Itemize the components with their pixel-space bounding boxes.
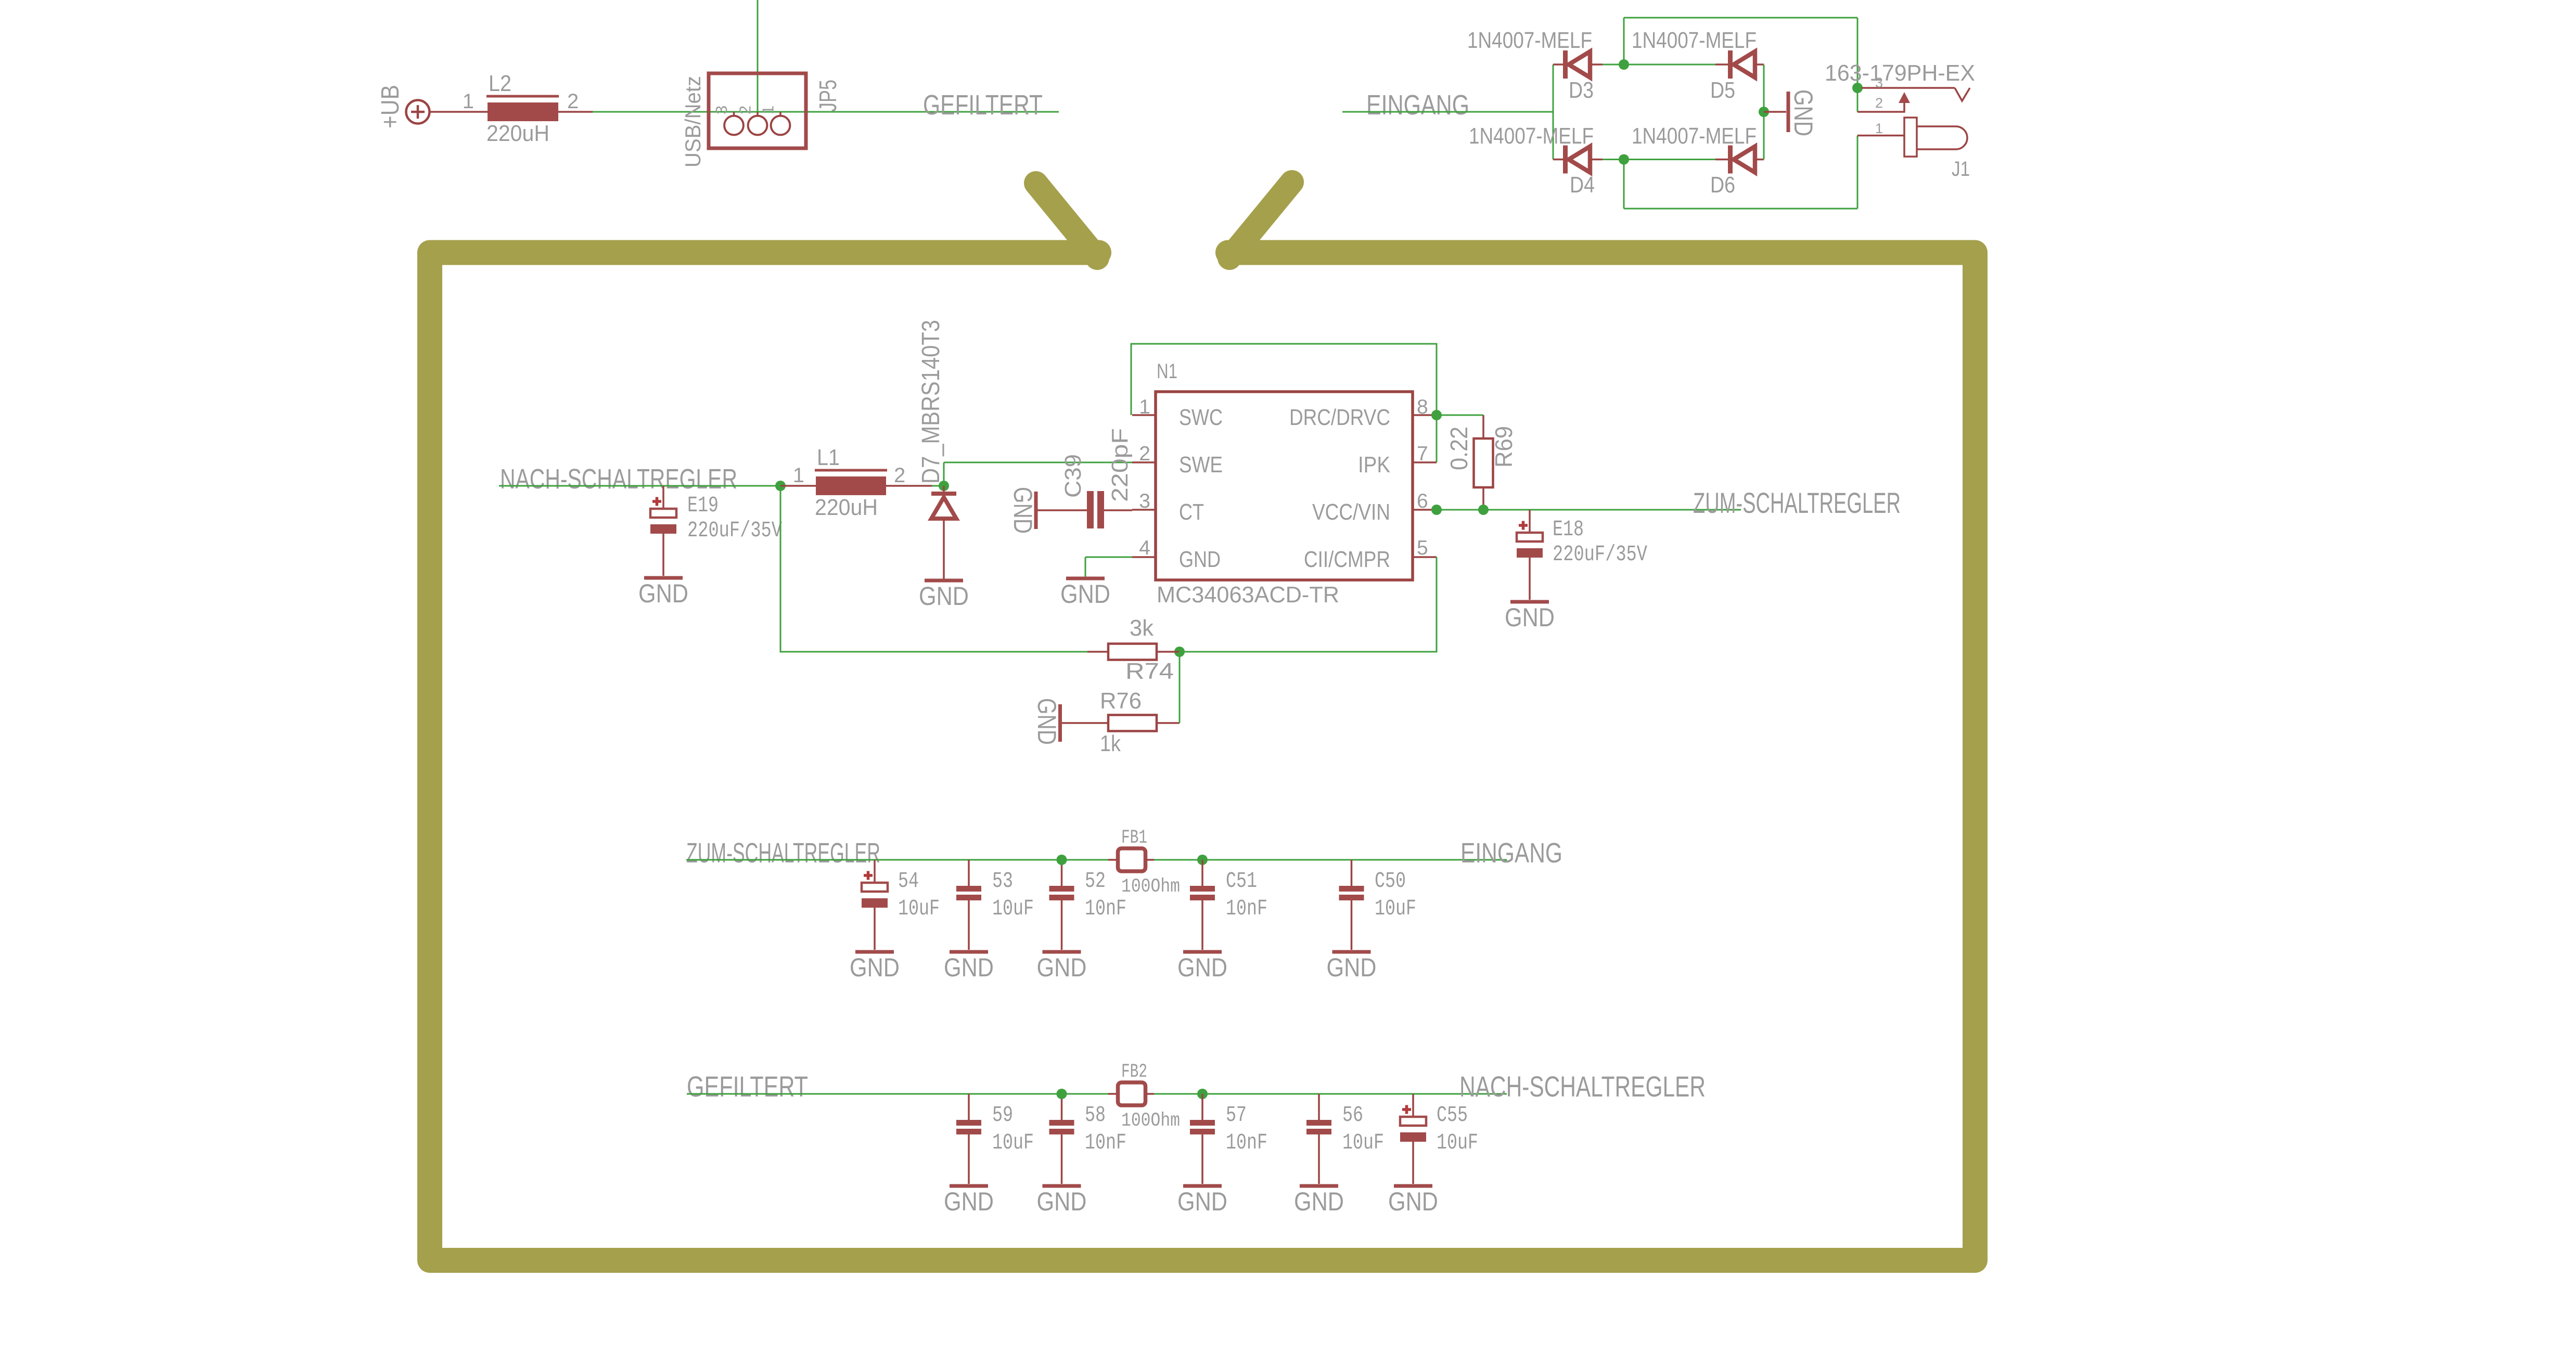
svg-text:1: 1 [1139,396,1150,418]
svg-text:1: 1 [463,90,474,113]
svg-text:L2: L2 [489,71,511,96]
svg-text:GND: GND [1388,1187,1438,1216]
svg-text:58: 58 [1085,1102,1106,1128]
svg-text:R74: R74 [1125,659,1174,684]
svg-text:GND: GND [944,1187,994,1216]
svg-text:220uF/35V: 220uF/35V [1553,541,1647,567]
svg-text:C51: C51 [1226,868,1257,894]
svg-text:R76: R76 [1100,688,1142,714]
svg-text:4: 4 [1139,537,1150,559]
svg-text:D3: D3 [1569,78,1594,103]
svg-text:220uF/35V: 220uF/35V [687,518,782,543]
svg-text:GND: GND [1037,953,1087,982]
svg-text:FB1: FB1 [1121,827,1147,849]
svg-text:59: 59 [992,1102,1013,1128]
svg-text:GND: GND [1789,89,1818,136]
svg-text:GND: GND [638,579,688,608]
svg-text:56: 56 [1342,1102,1363,1128]
svg-text:1N4007-MELF: 1N4007-MELF [1469,123,1594,149]
svg-text:8: 8 [1417,396,1428,418]
svg-text:2: 2 [567,90,579,113]
svg-text:1N4007-MELF: 1N4007-MELF [1632,28,1757,53]
svg-text:+UB: +UB [377,85,404,128]
svg-text:ZUM-SCHALTREGLER: ZUM-SCHALTREGLER [686,837,880,869]
svg-text:1: 1 [793,464,804,487]
svg-text:10uF: 10uF [992,1130,1034,1155]
svg-text:3: 3 [1139,490,1150,512]
svg-text:163-179PH-EX: 163-179PH-EX [1825,60,1975,86]
svg-text:C55: C55 [1437,1102,1468,1128]
svg-text:2: 2 [736,106,754,114]
svg-text:NACH-SCHALTREGLER: NACH-SCHALTREGLER [500,463,737,495]
svg-text:SWE: SWE [1179,452,1223,478]
svg-text:NACH-SCHALTREGLER: NACH-SCHALTREGLER [1459,1070,1706,1103]
svg-text:GND: GND [1177,1187,1227,1216]
svg-text:57: 57 [1226,1102,1247,1128]
svg-text:10uF: 10uF [1375,896,1416,921]
svg-text:52: 52 [1085,868,1106,894]
svg-text:0.22: 0.22 [1445,427,1472,470]
svg-text:D4: D4 [1570,172,1595,198]
svg-text:J1: J1 [1952,158,1970,180]
svg-text:54: 54 [898,868,919,894]
svg-text:CII/CMPR: CII/CMPR [1304,547,1390,572]
svg-text:L1: L1 [817,445,840,470]
svg-text:10nF: 10nF [1085,896,1126,921]
svg-text:FB2: FB2 [1121,1061,1147,1083]
svg-text:1N4007-MELF: 1N4007-MELF [1632,123,1757,149]
svg-text:2: 2 [894,464,905,487]
svg-text:GND: GND [850,953,900,982]
svg-text:USB/Netz: USB/Netz [681,76,705,167]
svg-text:10nF: 10nF [1085,1130,1126,1155]
svg-text:GND: GND [1060,579,1110,609]
svg-text:220uH: 220uH [815,495,878,520]
svg-text:GND: GND [1327,953,1377,982]
svg-text:10uF: 10uF [1437,1130,1478,1155]
svg-text:2: 2 [1139,443,1150,465]
svg-text:3: 3 [1875,75,1883,91]
svg-text:GND: GND [1294,1187,1344,1216]
svg-text:MC34063ACD-TR: MC34063ACD-TR [1157,582,1339,608]
svg-text:CT: CT [1179,499,1204,525]
svg-text:53: 53 [992,868,1013,894]
svg-text:1k: 1k [1100,731,1121,756]
svg-text:10uF: 10uF [992,896,1034,921]
svg-text:E19: E19 [687,493,719,518]
svg-text:GEFILTERT: GEFILTERT [687,1070,808,1103]
svg-text:C39: C39 [1060,454,1086,498]
svg-text:D7_MBRS140T3: D7_MBRS140T3 [917,320,945,484]
svg-text:GND: GND [1008,487,1037,534]
svg-text:DRC/DRVC: DRC/DRVC [1289,405,1390,430]
svg-text:SWC: SWC [1179,405,1223,430]
svg-text:D5: D5 [1710,78,1735,103]
svg-text:C50: C50 [1375,868,1406,894]
svg-text:R69: R69 [1490,426,1517,468]
svg-text:10uF: 10uF [1342,1130,1384,1155]
svg-text:N1: N1 [1157,360,1177,383]
svg-text:IPK: IPK [1358,452,1390,478]
svg-text:GND: GND [1505,603,1555,632]
svg-text:GND: GND [1032,698,1061,745]
svg-text:EINGANG: EINGANG [1460,837,1562,869]
svg-text:3: 3 [712,106,730,114]
svg-text:GND: GND [1177,953,1227,982]
svg-text:GEFILTERT: GEFILTERT [923,89,1043,121]
svg-text:10nF: 10nF [1226,896,1267,921]
svg-text:1: 1 [1875,121,1883,136]
svg-text:GND: GND [944,953,994,982]
svg-text:5: 5 [1417,537,1428,559]
svg-text:7: 7 [1417,443,1428,465]
svg-text:6: 6 [1417,490,1428,512]
svg-text:220uH: 220uH [486,121,549,146]
svg-text:D6: D6 [1710,172,1735,198]
svg-text:JP5: JP5 [814,80,841,112]
svg-text:GND: GND [1037,1187,1087,1216]
svg-text:1N4007-MELF: 1N4007-MELF [1467,28,1592,53]
svg-text:10uF: 10uF [898,896,940,921]
svg-text:E18: E18 [1553,517,1584,542]
svg-text:220pF: 220pF [1107,428,1133,502]
svg-text:100Ohm: 100Ohm [1121,876,1180,898]
svg-text:3k: 3k [1130,615,1154,641]
svg-text:10nF: 10nF [1226,1130,1267,1155]
svg-text:GND: GND [919,582,969,611]
svg-text:ZUM-SCHALTREGLER: ZUM-SCHALTREGLER [1693,486,1901,519]
svg-text:GND: GND [1179,547,1221,572]
svg-text:VCC/VIN: VCC/VIN [1312,499,1390,525]
svg-text:100Ohm: 100Ohm [1121,1110,1180,1132]
svg-text:2: 2 [1875,95,1883,111]
svg-text:EINGANG: EINGANG [1366,89,1469,121]
svg-text:1: 1 [759,106,777,114]
